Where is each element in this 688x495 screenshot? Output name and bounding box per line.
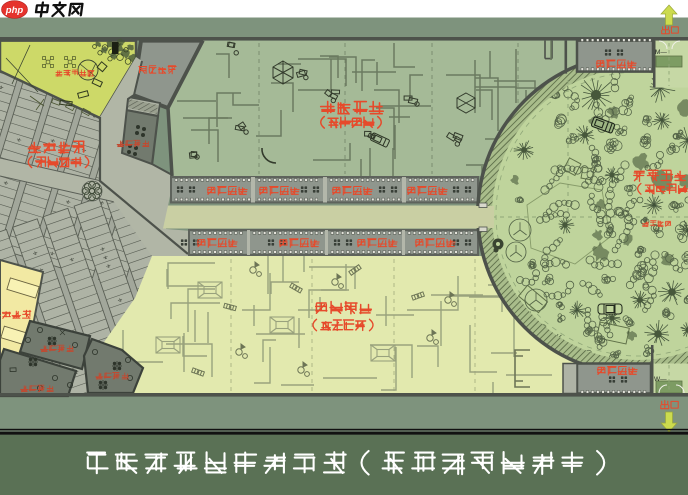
- svg-text:M—: M—: [655, 49, 667, 56]
- svg-text:W—: W—: [654, 376, 667, 383]
- svg-text:php: php: [5, 5, 24, 16]
